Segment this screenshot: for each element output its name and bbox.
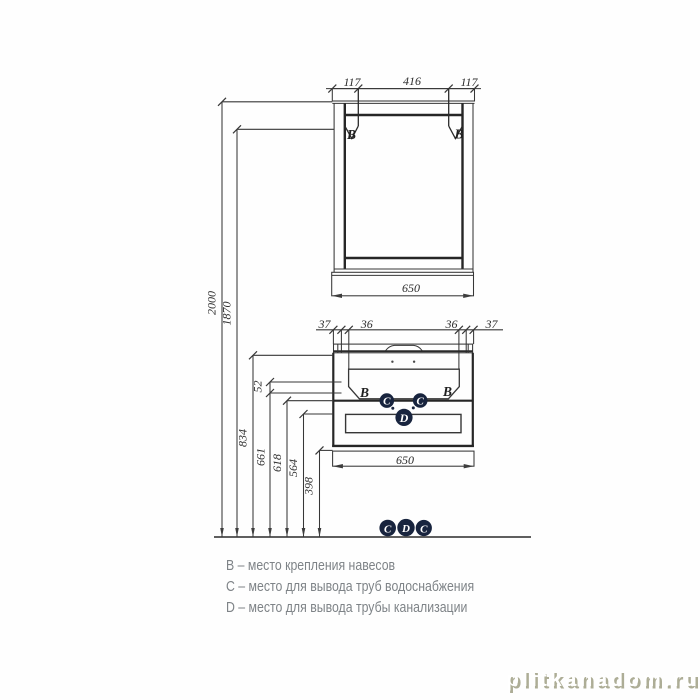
svg-text:2000: 2000 — [204, 291, 218, 315]
svg-text:C: C — [417, 396, 425, 408]
svg-text:117: 117 — [460, 75, 478, 89]
svg-text:C: C — [420, 523, 428, 535]
svg-text:834: 834 — [236, 429, 250, 447]
svg-text:37: 37 — [485, 317, 499, 331]
svg-text:B: B — [359, 385, 369, 400]
svg-text:C: C — [384, 523, 392, 535]
svg-text:398: 398 — [302, 477, 316, 496]
svg-text:B: B — [346, 127, 356, 142]
svg-text:B: B — [453, 127, 463, 142]
svg-text:D: D — [399, 411, 409, 425]
svg-text:52: 52 — [251, 381, 265, 393]
svg-text:37: 37 — [318, 317, 332, 331]
svg-text:416: 416 — [403, 74, 421, 88]
svg-text:564: 564 — [286, 459, 300, 477]
svg-text:B: B — [442, 384, 452, 399]
svg-text:661: 661 — [254, 448, 268, 466]
svg-text:618: 618 — [270, 454, 284, 472]
svg-text:D: D — [401, 523, 410, 535]
svg-text:C: C — [383, 396, 391, 408]
svg-text:117: 117 — [343, 75, 361, 89]
svg-text:650: 650 — [402, 281, 420, 295]
svg-text:36: 36 — [445, 317, 458, 331]
svg-text:36: 36 — [360, 317, 373, 331]
svg-text:650: 650 — [396, 453, 414, 467]
svg-text:1870: 1870 — [220, 302, 234, 326]
